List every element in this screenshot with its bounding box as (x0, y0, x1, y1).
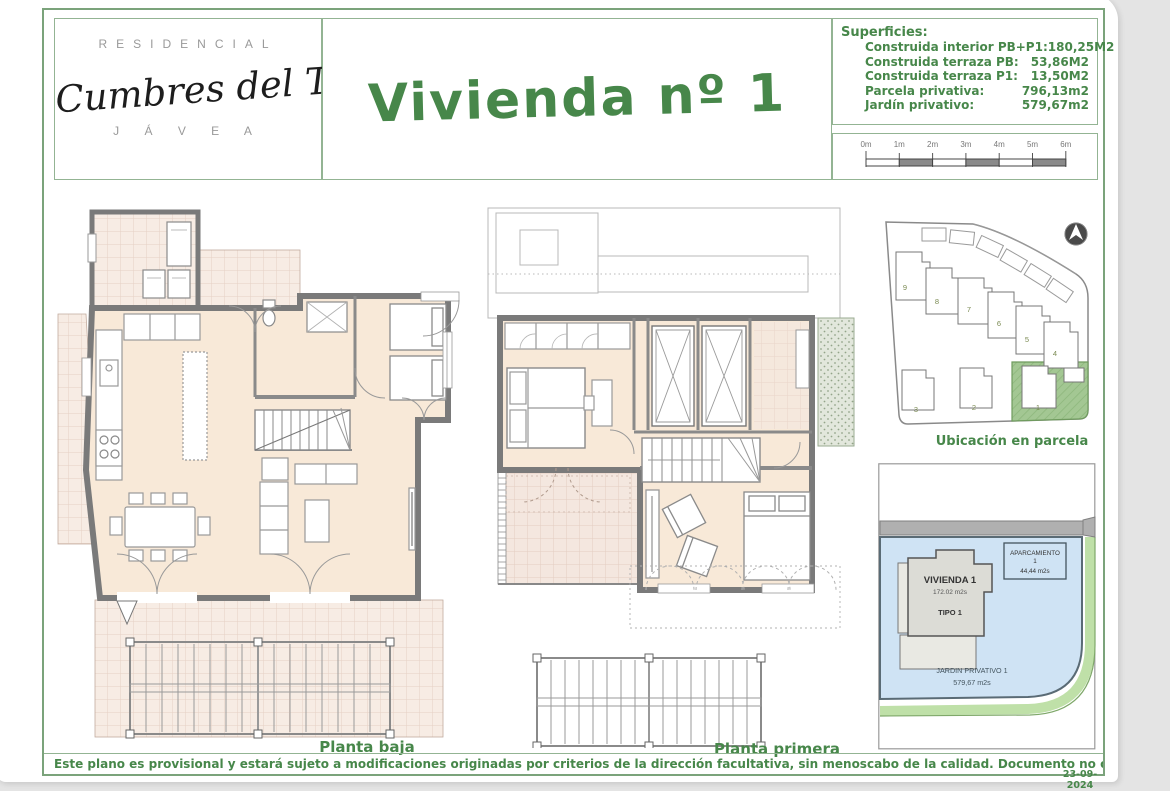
aparcamiento-number: 1 (1033, 558, 1037, 565)
scale-tick: 2m (927, 140, 938, 149)
scale-tick: 4m (994, 140, 1005, 149)
vivienda-name: VIVIENDA 1 (924, 575, 977, 586)
vivienda-area: 172.02 m2s (933, 589, 968, 596)
appliance (168, 270, 190, 298)
parcel-number: 3 (914, 405, 918, 414)
scale-tick: 3m (960, 140, 971, 149)
superficie-row: Parcela privativa: 796,13m2 (841, 84, 1089, 99)
scalebar-block: 0m 1m 2m 3m 4m 5m 6m (832, 133, 1098, 180)
superficie-value: 180,25M2 (1048, 40, 1115, 55)
parcel-number: 4 (1053, 349, 1057, 358)
parcel-number: 9 (903, 283, 907, 292)
superficie-label: Construida interior PB+P1: (841, 40, 1048, 55)
superficie-value: 579,67m2 (1011, 98, 1089, 113)
scale-bar: 0m 1m 2m 3m 4m 5m 6m (833, 134, 1096, 178)
upper-terrace (502, 472, 638, 584)
superficies-heading: Superficies: (841, 25, 1089, 40)
city-label: J Á V E A (55, 124, 321, 138)
superficie-label: Jardín privativo: (841, 98, 1011, 113)
entry-terrace (200, 250, 300, 312)
superficie-row: Construida terraza P1: 13,50M2 (841, 69, 1089, 84)
superficie-value: 796,13m2 (1011, 84, 1089, 99)
compass-icon (1065, 223, 1087, 245)
appliance (143, 270, 165, 298)
residencial-label: RESIDENCIAL (55, 37, 321, 51)
title-block: Vivienda nº 1 (322, 18, 832, 180)
staircase (642, 438, 760, 482)
superficie-row: Construida interior PB+P1: 180,25M2 (841, 40, 1089, 55)
superficie-value: 53,86M2 (1019, 55, 1089, 70)
appliance (167, 222, 191, 266)
parcel-detail: VIVIENDA 1 172.02 m2s TIPO 1 APARCAMIENT… (878, 463, 1096, 750)
scale-tick: 5m (1027, 140, 1038, 149)
superficie-label: Parcela privativa: (841, 84, 1011, 99)
vivienda-type: TIPO 1 (938, 608, 962, 617)
green-roof-hatch (818, 318, 854, 446)
parcel-number: 8 (935, 297, 939, 306)
logo-block: RESIDENCIAL Cumbres del Tosalet J Á V E … (54, 18, 322, 180)
aparcamiento-area: 44,44 m2s (1020, 568, 1049, 575)
parking-plot: APARCAMIENTO 1 44,44 m2s (1004, 543, 1066, 579)
superficie-value: 13,50M2 (1018, 69, 1089, 84)
date-stamp: 23-09-2024 (1050, 769, 1110, 791)
vanity (796, 330, 809, 388)
parcel-number: 1 (1036, 403, 1040, 412)
scale-tick: 0m (860, 140, 871, 149)
parcel-number: 6 (997, 319, 1001, 328)
staircase (255, 408, 350, 450)
parcel-number: 5 (1025, 335, 1029, 344)
aparcamiento-name: APARCAMIENTO (1010, 550, 1060, 557)
superficie-label: Construida terraza P1: (841, 69, 1018, 84)
superficies-block: Superficies: Construida interior PB+P1: … (832, 18, 1098, 125)
superficie-row: Construida terraza PB: 53,86M2 (841, 55, 1089, 70)
pergola (533, 654, 765, 748)
plan-sheet-page: RESIDENCIAL Cumbres del Tosalet J Á V E … (0, 0, 1170, 785)
first-floor-plan (462, 200, 857, 748)
jardin-name: JARDIN PRIVATIVO 1 (936, 666, 1007, 675)
superficie-label: Construida terraza PB: (841, 55, 1019, 70)
parcel-number: 2 (972, 403, 976, 412)
scale-tick: 6m (1060, 140, 1071, 149)
superficie-row: Jardín privativo: 579,67m2 (841, 98, 1089, 113)
laundry-room (88, 212, 198, 308)
terrace-shutter-ticks (498, 472, 506, 584)
page-title: Vivienda nº 1 (367, 64, 787, 135)
jardin-area: 579,67 m2s (953, 678, 991, 687)
site-plan: 9 8 7 6 5 4 3 2 1 Ubicación en parcela (878, 212, 1098, 452)
siteplan-label: Ubicación en parcela (936, 434, 1089, 449)
roof-outline (488, 208, 840, 318)
ground-floor-plan (55, 192, 460, 752)
scale-tick: 1m (894, 140, 905, 149)
disclaimer-text: Este plano es provisional y estará sujet… (44, 753, 1103, 774)
parcel-number: 7 (967, 305, 971, 314)
